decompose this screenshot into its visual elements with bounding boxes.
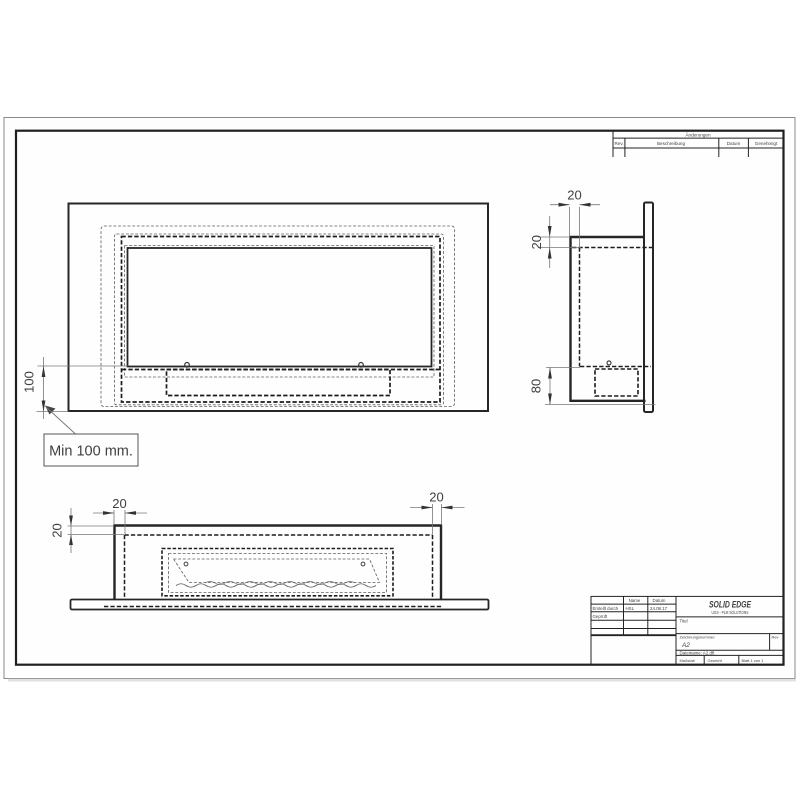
svg-text:Gewicht: Gewicht (708, 658, 723, 663)
svg-text:Datum: Datum (653, 598, 666, 603)
svg-text:Geprüft: Geprüft (593, 614, 608, 619)
svg-text:80: 80 (529, 379, 544, 393)
svg-text:Genehmigt: Genehmigt (755, 141, 778, 146)
svg-text:Beschreibung: Beschreibung (657, 141, 686, 146)
svg-text:20: 20 (50, 523, 65, 537)
svg-text:24.08.17: 24.08.17 (650, 606, 668, 611)
svg-text:Rev: Rev (772, 634, 779, 639)
svg-text:SOLID EDGE: SOLID EDGE (709, 599, 751, 610)
svg-text:Änderungen: Änderungen (685, 132, 710, 138)
svg-text:Rev.: Rev. (614, 141, 623, 146)
svg-text:100: 100 (22, 371, 37, 393)
svg-text:Dateiname: A2.dft: Dateiname: A2.dft (680, 650, 716, 655)
svg-text:Erstellt durch: Erstellt durch (593, 606, 619, 611)
svg-text:UGS - PLM SOLUTIONS: UGS - PLM SOLUTIONS (712, 610, 749, 615)
svg-text:HSL: HSL (626, 606, 635, 611)
svg-text:A2: A2 (681, 642, 690, 649)
svg-text:Datum: Datum (727, 141, 741, 146)
svg-text:20: 20 (429, 490, 443, 505)
svg-text:Name: Name (629, 598, 641, 603)
svg-text:Blatt 1 von 1: Blatt 1 von 1 (742, 658, 764, 663)
svg-text:20: 20 (529, 235, 544, 249)
svg-text:Zeichnungsnummer:: Zeichnungsnummer: (680, 634, 716, 639)
svg-text:Maßstab: Maßstab (680, 658, 696, 663)
svg-text:Min 100 mm.: Min 100 mm. (49, 444, 133, 460)
svg-text:Titel: Titel (680, 619, 688, 624)
svg-text:20: 20 (112, 496, 126, 511)
svg-text:20: 20 (567, 188, 581, 203)
